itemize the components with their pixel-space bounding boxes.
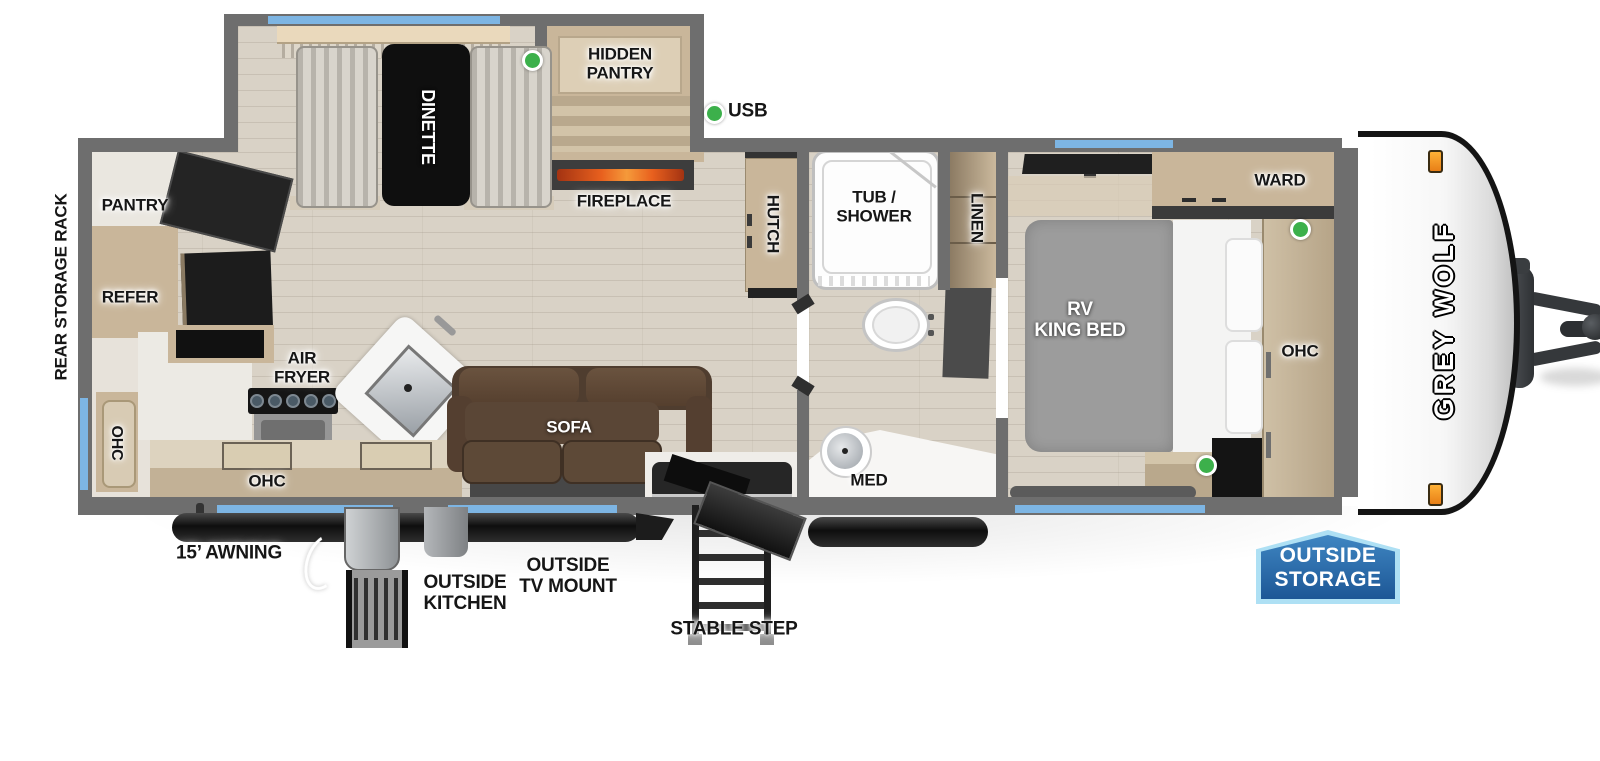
bedroom-tv <box>1022 154 1158 174</box>
outside-storage-line2: STORAGE <box>1275 568 1382 592</box>
toilet-seat <box>872 306 920 344</box>
sofa-label: SOFA <box>546 419 592 438</box>
air-fryer-label: AIR FRYER <box>274 349 330 386</box>
fireplace-label: FIREPLACE <box>577 193 672 212</box>
toilet-hinge <box>928 314 934 320</box>
dinette-bench-right <box>470 46 552 208</box>
bath-door-panel <box>942 285 991 379</box>
burner-icon <box>286 394 300 408</box>
hitch-arm <box>1527 340 1600 367</box>
marker-light <box>1428 150 1443 173</box>
usb-legend-dot <box>704 103 725 124</box>
linen-divider <box>938 152 950 290</box>
awning-roller-left <box>172 513 640 542</box>
brand-logo: GREY WOLF <box>1424 180 1464 460</box>
usb-legend-label: USB <box>728 102 768 123</box>
sink-drain <box>404 384 412 392</box>
outside-kitchen-bracket <box>424 507 468 557</box>
burner-icon <box>250 394 264 408</box>
toilet-hinge <box>928 330 934 336</box>
sofa-bottom-window <box>448 505 617 513</box>
ward-handle <box>1212 198 1226 202</box>
floorplan-canvas: GREY WOLF OUTSIDE STORAGE USB REAR STORA… <box>0 0 1600 761</box>
rv-king-bed-label: RV KING BED <box>1034 300 1125 342</box>
bedroom-top-window <box>1055 140 1173 148</box>
pillow <box>1225 340 1263 434</box>
ohc-rear-label: OHC <box>107 426 125 461</box>
slide-left-wall <box>224 14 238 152</box>
refer-label: REFER <box>102 289 159 308</box>
hidden-pantry-label: HIDDEN PANTRY <box>587 45 654 82</box>
slide-right-wall <box>690 14 704 152</box>
ward-underside <box>1152 206 1338 219</box>
hitch-shadow <box>1540 368 1600 386</box>
outside-kitchen-label: OUTSIDE KITCHEN <box>423 573 506 615</box>
counter-body <box>150 468 462 497</box>
usb-dot-nightstand <box>1196 455 1217 476</box>
bedroom-wall-upper <box>996 152 1008 278</box>
top-wall-right <box>690 138 1342 152</box>
ohc-bedroom-label: OHC <box>1281 343 1318 362</box>
pantry-label: PANTRY <box>102 197 169 216</box>
ward-handle <box>1182 198 1196 202</box>
sofa-seat <box>462 440 562 484</box>
ward-cabinet <box>1152 152 1338 208</box>
rear-storage-rack-label: REAR STORAGE RACK <box>53 193 72 380</box>
hitch-arm <box>1527 291 1600 318</box>
outside-griddle-slats <box>354 578 400 640</box>
usb-dot-ward <box>1290 219 1311 240</box>
med-label: MED <box>850 472 887 491</box>
ohc-kitchen-label: OHC <box>248 473 285 492</box>
top-wall-left <box>78 138 238 152</box>
bed-base-cabinet <box>1212 438 1262 498</box>
dinette-label: DINETTE <box>417 89 437 165</box>
bedroom-bottom-window <box>1015 505 1205 513</box>
outside-storage-badge-inner: OUTSIDE STORAGE <box>1261 535 1395 599</box>
stable-step-rung <box>699 554 764 561</box>
cutting-board <box>222 442 292 470</box>
cooktop <box>248 388 338 414</box>
stable-step-rung <box>699 578 764 585</box>
stable-step-label: STABLE STEP <box>670 620 797 641</box>
ohc-handle <box>1266 352 1271 378</box>
rear-wall-window <box>80 398 88 490</box>
cutting-board <box>360 442 432 470</box>
bath-wall-left-upper <box>797 152 809 302</box>
pantry-door <box>92 226 178 243</box>
headboard-shelf <box>1008 176 1158 216</box>
microwave <box>176 330 264 358</box>
marker-light <box>1428 483 1443 506</box>
vanity-drain <box>842 448 848 454</box>
hutch-handle <box>747 236 752 248</box>
awning-label: 15’ AWNING <box>176 544 282 565</box>
ward-label: WARD <box>1254 172 1305 191</box>
bath-wall-left-lower <box>797 390 809 497</box>
sofa-back-cushion <box>459 368 579 406</box>
stable-step-rung <box>699 602 764 609</box>
burner-icon <box>304 394 318 408</box>
ohc-handle <box>1266 432 1271 458</box>
tub-scallop <box>818 276 930 286</box>
usb-dot-dinette <box>522 50 543 71</box>
outside-kitchen-bracket <box>344 507 400 571</box>
burner-icon <box>268 394 282 408</box>
bedroom-wall-lower <box>996 418 1008 497</box>
hutch-label: HUTCH <box>763 195 782 254</box>
pillow <box>1225 238 1263 332</box>
awning-roller-door-side <box>808 517 988 547</box>
hidden-pantry-steps <box>547 96 690 152</box>
hutch-handle <box>747 214 752 226</box>
outside-tv-mount-label: OUTSIDE TV MOUNT <box>519 556 617 598</box>
fireplace-flame <box>557 169 684 181</box>
tub-shower-label: TUB / SHOWER <box>836 188 911 225</box>
burner-icon <box>322 394 336 408</box>
dinette-bench-left <box>296 46 378 208</box>
dinette-window <box>268 16 500 24</box>
stove-door <box>261 420 325 442</box>
linen-label: LINEN <box>967 193 986 243</box>
outside-storage-line1: OUTSIDE <box>1280 544 1377 568</box>
dinette-valance <box>277 26 510 44</box>
